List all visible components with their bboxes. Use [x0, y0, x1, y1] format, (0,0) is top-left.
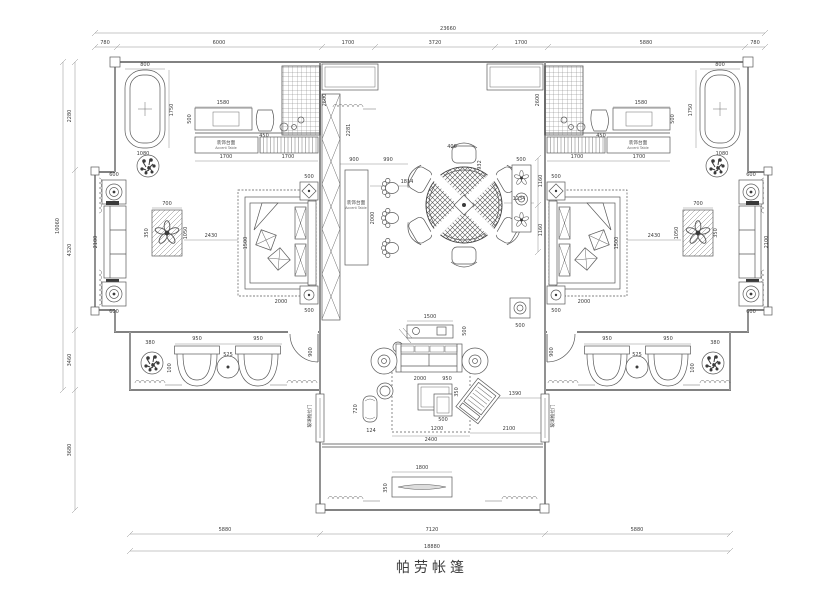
room-label-en: Accent Table — [345, 206, 366, 210]
dimension-label: 1050 — [674, 227, 680, 240]
dimension-label: 1700 — [633, 154, 646, 160]
dimension-label: 780 — [100, 40, 110, 46]
drawing-title: 帕劳帐篷 — [396, 560, 468, 576]
dimension-label: 1500 — [424, 314, 437, 320]
dimension-label: 400 — [447, 144, 457, 150]
room-label: 装饰台面 — [347, 199, 366, 206]
dimension-label: 380 — [710, 340, 720, 346]
dimension-label: 700 — [162, 201, 172, 207]
room-label: 装饰台面 — [629, 139, 648, 146]
dimension-label: 950 — [602, 336, 612, 342]
bathtub-right — [700, 70, 740, 148]
dimension-label: 600 — [109, 172, 119, 178]
dimension-label: 600 — [109, 309, 119, 315]
dimension-label: 5880 — [631, 527, 644, 533]
accent-counter-right — [547, 137, 670, 153]
dimension-label: 950 — [192, 336, 202, 342]
dimension-label: 2100 — [503, 426, 516, 432]
plant-icon — [706, 155, 728, 177]
dimension-label: 2400 — [425, 437, 438, 443]
left-suite — [99, 66, 320, 386]
dimension-label: 1700 — [220, 154, 233, 160]
shower-right — [545, 66, 583, 135]
dimension-label: 7120 — [426, 527, 439, 533]
dimension-label: 500 — [515, 323, 525, 329]
dimension-label: 500 — [438, 417, 448, 423]
dimension-label: 18880 — [424, 544, 440, 550]
dimension-label: 1700 — [515, 40, 528, 46]
dimension-label: 1160 — [538, 224, 544, 237]
dimension-label: 800 — [715, 62, 725, 68]
dimension-label: 5880 — [219, 527, 232, 533]
dimension-label: 500 — [462, 326, 468, 336]
sofa — [396, 344, 462, 372]
lamp-table — [371, 348, 397, 374]
dimension-label: 2000 — [578, 299, 591, 305]
dimension-label: 525 — [223, 352, 233, 358]
coffee-tables — [418, 384, 452, 416]
dimension-label: 950 — [442, 376, 452, 382]
bay-window-left — [99, 178, 126, 306]
right-suite — [545, 66, 764, 386]
room-label-en: Accent Table — [215, 146, 236, 150]
flower-table-right — [683, 210, 713, 256]
floor-plan-drawing: 2366078060001700372017005880780588071205… — [0, 0, 837, 592]
dimension-label: 950 — [253, 336, 263, 342]
room-label: 装饰台面 — [217, 139, 236, 146]
dimension-label: 1050 — [183, 227, 189, 240]
vanity-left — [195, 108, 297, 131]
dimension-label: 450 — [596, 133, 606, 139]
dimension-label: 2000 — [414, 376, 427, 382]
dimension-label: 1750 — [169, 104, 175, 117]
console-table — [345, 170, 368, 265]
dimension-label: 500 — [304, 174, 314, 180]
dimension-label: 1500 — [243, 237, 249, 250]
dimension-label: 800 — [140, 62, 150, 68]
dimension-label: 3720 — [429, 40, 442, 46]
dimension-label: 1234 — [513, 196, 526, 202]
flower-table-left — [152, 210, 182, 256]
dimension-label: 1500 — [614, 237, 620, 250]
dimension-label: 1580 — [217, 100, 230, 106]
dimension-label: 100 — [690, 363, 696, 373]
dimension-label: 2100 — [93, 236, 99, 249]
room-label: 玻璃推拉门 — [306, 404, 313, 427]
lounge-room-left — [135, 334, 318, 386]
lamp-table — [462, 348, 488, 374]
dimension-label: 990 — [383, 157, 393, 163]
living-group — [363, 325, 500, 432]
dimension-label: 950 — [663, 336, 673, 342]
lounge-chair — [456, 378, 500, 424]
dimension-label: 780 — [750, 40, 760, 46]
vanity-right — [569, 108, 671, 131]
dimension-label: 3460 — [67, 354, 73, 367]
dimension-label: 2000 — [275, 299, 288, 305]
dimension-label: 350 — [144, 228, 150, 238]
dimension-label: 500 — [304, 308, 314, 314]
dimension-label: 1814 — [401, 179, 414, 185]
dimension-label: 2430 — [648, 233, 661, 239]
dimension-label: 350 — [454, 387, 460, 397]
dimension-label: 500 — [551, 308, 561, 314]
dimension-label: 1580 — [635, 100, 648, 106]
dimension-label: 600 — [746, 309, 756, 315]
dimension-label: 4320 — [67, 244, 73, 257]
room-label-en: Accent Table — [627, 146, 648, 150]
dimension-label: 2000 — [370, 212, 376, 225]
lounge-room-right — [547, 334, 730, 386]
dimension-label: 500 — [670, 114, 676, 124]
dimension-label: 900 — [349, 157, 359, 163]
dimension-label: 1080 — [137, 151, 150, 157]
dimension-label: 720 — [353, 404, 359, 414]
dimension-label: 2600 — [535, 94, 541, 107]
dimension-label: 23660 — [440, 26, 456, 32]
dimension-label: 5880 — [640, 40, 653, 46]
dimension-label: 600 — [746, 172, 756, 178]
bar-stools — [381, 178, 398, 257]
dimension-label: 700 — [693, 201, 703, 207]
dimension-label: 1080 — [716, 151, 729, 157]
bed-left — [238, 190, 316, 296]
dimension-label: 2280 — [67, 110, 73, 123]
dimension-label: 525 — [632, 352, 642, 358]
dimension-label: 100 — [167, 363, 173, 373]
accent-counter-left — [195, 137, 318, 153]
dimension-label: 2430 — [205, 233, 218, 239]
dimension-label: 450 — [259, 133, 269, 139]
bench — [363, 396, 377, 422]
dimension-label: 380 — [145, 340, 155, 346]
dimension-label: 3680 — [67, 444, 73, 457]
dimension-label: 1390 — [509, 391, 522, 397]
plant-icon — [137, 155, 159, 177]
bay-window-right — [739, 178, 764, 306]
dimension-label: 1700 — [342, 40, 355, 46]
dimension-label: 932 — [477, 160, 483, 170]
dimension-label: 500 — [516, 157, 526, 163]
dimension-label: 10060 — [55, 218, 61, 234]
dimension-label: 350 — [383, 483, 389, 493]
dimension-label: 500 — [551, 174, 561, 180]
terrace — [328, 477, 537, 501]
dimension-label: 2281 — [346, 124, 352, 137]
dimension-label: 500 — [187, 114, 193, 124]
dimension-label: 1700 — [282, 154, 295, 160]
shower-left — [282, 66, 320, 135]
dimension-label: 124 — [366, 428, 376, 434]
dimension-label: 900 — [549, 347, 555, 357]
dimension-label: 6000 — [213, 40, 226, 46]
dimension-label: 1160 — [538, 175, 544, 188]
dimension-label: 350 — [713, 228, 719, 238]
room-label: 玻璃推拉门 — [549, 404, 556, 427]
dimension-label: 1700 — [571, 154, 584, 160]
bathtub-left — [125, 70, 165, 148]
dimension-label: 2100 — [764, 236, 770, 249]
dimension-label: 2600 — [322, 94, 328, 107]
dimension-label: 1750 — [688, 104, 694, 117]
dining-set — [404, 143, 524, 267]
floor-plan-sheet: 2366078060001700372017005880780588071205… — [0, 0, 837, 592]
dimension-label: 900 — [308, 347, 314, 357]
dimension-label: 1200 — [431, 426, 444, 432]
dimension-label: 1800 — [416, 465, 429, 471]
entry-vestibules — [322, 64, 543, 90]
